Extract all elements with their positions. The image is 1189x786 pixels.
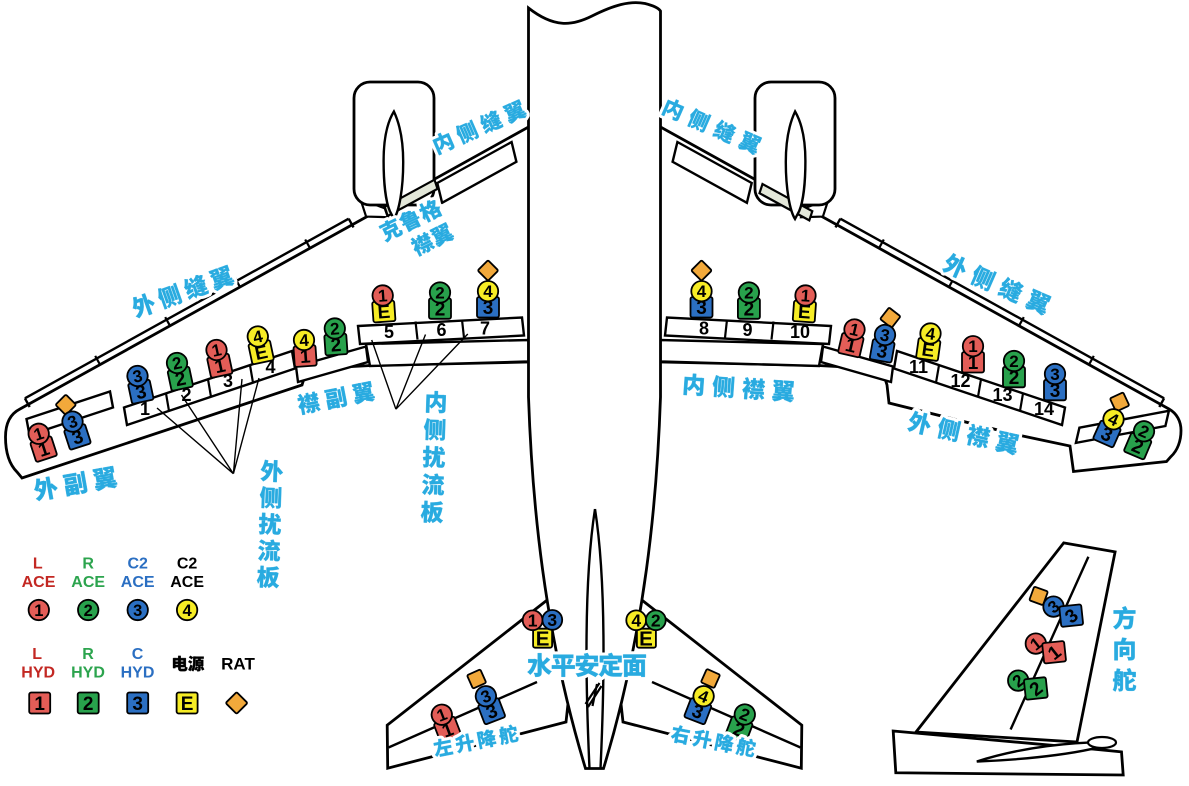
svg-text:E: E: [639, 627, 653, 650]
svg-text:1: 1: [299, 346, 311, 368]
svg-text:C2: C2: [177, 556, 198, 573]
svg-text:8: 8: [699, 318, 709, 338]
svg-text:1: 1: [34, 602, 43, 620]
svg-text:10: 10: [790, 322, 810, 342]
svg-text:2: 2: [84, 602, 93, 620]
svg-text:E: E: [797, 302, 811, 324]
svg-text:1: 1: [34, 694, 45, 715]
svg-text:2: 2: [83, 694, 94, 715]
svg-text:14: 14: [1034, 399, 1054, 419]
svg-text:3: 3: [696, 298, 707, 319]
svg-text:2: 2: [1009, 368, 1020, 389]
svg-text:HYD: HYD: [121, 665, 155, 682]
svg-text:R: R: [82, 646, 94, 663]
svg-text:3: 3: [1050, 381, 1061, 402]
svg-text:5: 5: [384, 322, 394, 342]
svg-text:C: C: [132, 646, 144, 663]
svg-text:ACE: ACE: [71, 574, 105, 591]
svg-text:E: E: [536, 628, 550, 651]
svg-text:3: 3: [133, 602, 142, 620]
svg-text:L: L: [32, 646, 42, 663]
svg-text:HYD: HYD: [71, 665, 105, 682]
svg-text:6: 6: [436, 320, 446, 340]
svg-text:1: 1: [968, 353, 979, 374]
svg-text:RAT: RAT: [221, 655, 255, 674]
svg-text:2: 2: [435, 299, 446, 320]
svg-text:9: 9: [742, 320, 752, 340]
svg-text:R: R: [82, 556, 94, 573]
svg-text:E: E: [181, 694, 194, 715]
svg-text:ACE: ACE: [22, 574, 56, 591]
svg-text:3: 3: [483, 298, 494, 319]
svg-text:2: 2: [744, 299, 755, 320]
svg-text:C2: C2: [127, 556, 148, 573]
svg-text:ACE: ACE: [170, 574, 204, 591]
svg-text:7: 7: [480, 318, 490, 338]
svg-text:3: 3: [132, 694, 143, 715]
svg-text:HYD: HYD: [21, 665, 55, 682]
svg-text:L: L: [33, 556, 43, 573]
svg-text:4: 4: [183, 602, 193, 620]
svg-text:ACE: ACE: [121, 574, 155, 591]
svg-text:2: 2: [330, 335, 342, 357]
svg-text:E: E: [377, 302, 391, 324]
